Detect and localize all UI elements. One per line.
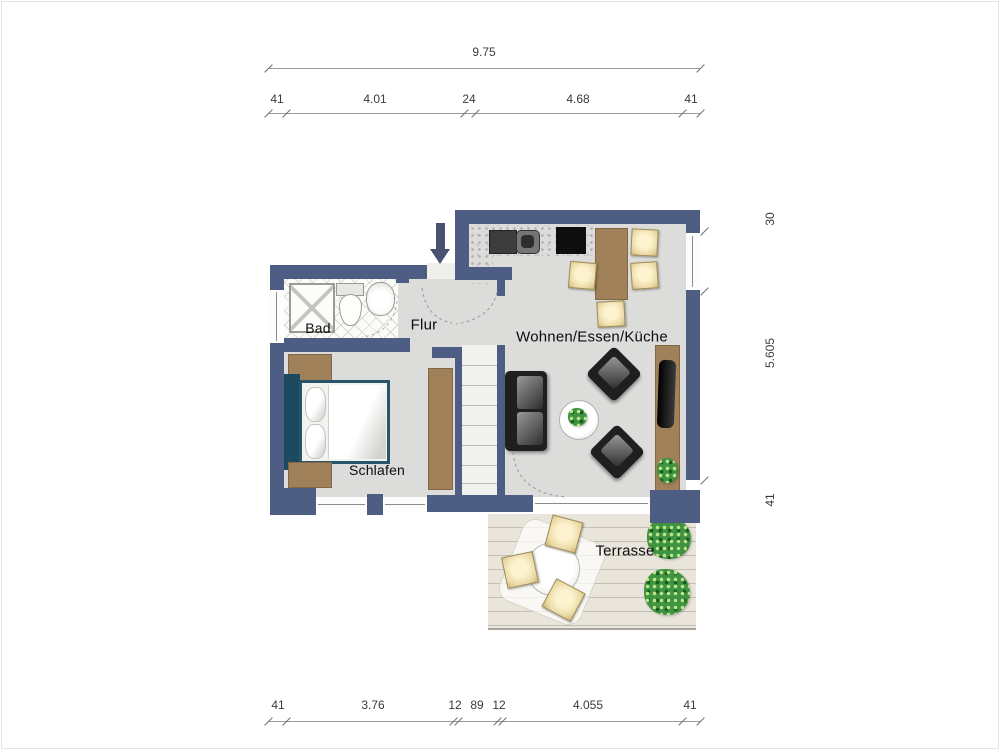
dimension-label-right: 5.605 bbox=[763, 338, 777, 368]
stair-tread bbox=[462, 465, 497, 466]
pillow bbox=[305, 424, 326, 459]
dimension-label-bottom: 3.76 bbox=[361, 698, 384, 712]
kitchen-sink-basin bbox=[516, 230, 540, 254]
room-label-bad: Bad bbox=[305, 320, 331, 336]
window bbox=[686, 233, 700, 290]
dimension-label-bottom: 41 bbox=[683, 698, 696, 712]
terrace-glass-door bbox=[533, 497, 650, 512]
room-label-wohnen-essen-kueche: Wohnen/Essen/Küche bbox=[516, 329, 668, 346]
window-glass-line bbox=[276, 292, 277, 341]
corner-block-bottom-left bbox=[270, 488, 316, 515]
stair-tread bbox=[462, 483, 497, 484]
stair-tread bbox=[462, 425, 497, 426]
terrace-chair bbox=[501, 551, 539, 589]
dimension-label-top: 24 bbox=[462, 92, 475, 106]
duvet bbox=[328, 385, 386, 459]
dimension-line-top-total bbox=[268, 68, 700, 69]
potted-plant bbox=[657, 458, 678, 483]
dimension-label-bottom: 12 bbox=[448, 698, 461, 712]
armchair-cushion bbox=[600, 434, 634, 468]
dining-chair bbox=[630, 228, 658, 256]
glass-door-line bbox=[535, 503, 648, 504]
dining-chair bbox=[568, 261, 597, 290]
corner-block-bottom-right bbox=[650, 490, 700, 523]
dining-chair bbox=[596, 300, 625, 327]
dimension-label-bottom: 89 bbox=[470, 698, 483, 712]
entrance-arrow-icon bbox=[436, 223, 445, 249]
sofa bbox=[505, 371, 547, 451]
pillow bbox=[305, 387, 326, 422]
tv bbox=[657, 360, 676, 429]
staircase bbox=[462, 345, 497, 497]
room-label-terrasse: Terrasse bbox=[595, 543, 654, 560]
bathroom-sink bbox=[366, 282, 395, 316]
dimension-line-top-segments bbox=[268, 113, 700, 114]
window-pier bbox=[367, 494, 383, 515]
bed-headboard bbox=[284, 374, 300, 470]
entrance-opening bbox=[427, 263, 455, 279]
dimension-label-top: 4.68 bbox=[566, 92, 589, 106]
stair-tread bbox=[462, 365, 497, 366]
dimension-label-right: 30 bbox=[763, 212, 777, 225]
bottom-wall-center bbox=[427, 495, 533, 512]
bath-bottom-wall bbox=[270, 338, 410, 352]
room-label-schlafen: Schlafen bbox=[349, 462, 405, 478]
dimension-tick bbox=[700, 227, 708, 235]
sink-bowl bbox=[521, 235, 534, 248]
dimension-tick bbox=[700, 287, 708, 295]
bed bbox=[299, 380, 390, 464]
dimension-label-bottom: 4.055 bbox=[573, 698, 603, 712]
sofa-cushion bbox=[517, 412, 543, 445]
stair-wall-left bbox=[455, 352, 462, 497]
window-glass-line bbox=[318, 504, 365, 505]
stair-tread bbox=[462, 405, 497, 406]
dimension-label-right: 41 bbox=[763, 493, 777, 506]
cooktop bbox=[556, 227, 586, 254]
nightstand bbox=[288, 462, 332, 488]
floor-plan-canvas: 9.75 41 4.01 24 4.68 41 30 5.605 41 41 3… bbox=[0, 0, 1000, 750]
stair-tread bbox=[462, 385, 497, 386]
window-glass-line bbox=[692, 236, 693, 287]
wardrobe bbox=[428, 368, 453, 490]
stair-wall-right bbox=[497, 345, 505, 497]
stair-tread bbox=[462, 445, 497, 446]
dimension-label-total-width: 9.75 bbox=[472, 45, 495, 59]
window bbox=[270, 290, 284, 343]
hall-living-wall-stub bbox=[497, 279, 505, 296]
bath-hall-wall-stub bbox=[396, 265, 409, 283]
potted-plant bbox=[644, 569, 690, 615]
dimension-line-bottom bbox=[268, 721, 700, 722]
entrance-arrow-head-icon bbox=[430, 249, 450, 264]
dimension-label-bottom: 41 bbox=[271, 698, 284, 712]
window-glass-line bbox=[385, 504, 425, 505]
dimension-label-top: 4.01 bbox=[363, 92, 386, 106]
sofa-cushion bbox=[517, 376, 543, 409]
table-plant bbox=[568, 408, 587, 426]
armchair-cushion bbox=[597, 356, 631, 390]
outer-wall-top bbox=[455, 210, 700, 224]
room-label-flur: Flur bbox=[411, 317, 438, 334]
dining-chair bbox=[630, 261, 659, 290]
dining-table bbox=[595, 228, 628, 300]
dimension-label-bottom: 12 bbox=[492, 698, 505, 712]
kitchen-sink bbox=[489, 230, 517, 254]
dimension-label-top: 41 bbox=[270, 92, 283, 106]
dimension-label-top: 41 bbox=[684, 92, 697, 106]
dimension-tick bbox=[700, 476, 708, 484]
